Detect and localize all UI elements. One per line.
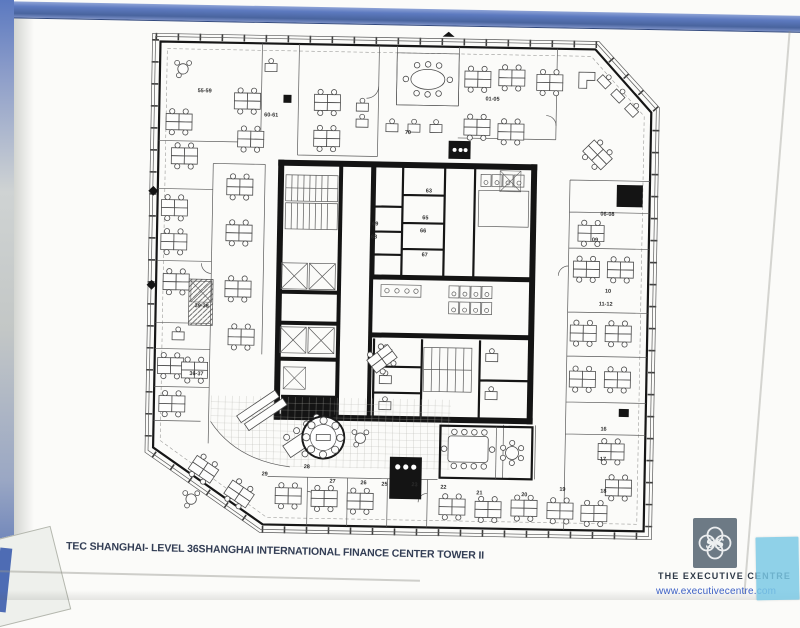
- core-stair-top: [285, 175, 338, 230]
- room-label: 16: [600, 427, 606, 433]
- room-label: 09: [592, 237, 598, 243]
- room-label: 26: [360, 480, 366, 486]
- room-label: 39-38: [195, 303, 209, 309]
- room-label: 20: [521, 492, 527, 498]
- room-label: 29: [262, 471, 268, 477]
- oval-meeting-room: [396, 53, 459, 106]
- room-label: 27: [329, 479, 335, 485]
- paper-crease-line: [743, 31, 790, 594]
- room-label: 28: [304, 464, 310, 470]
- room-label: 01-05: [485, 96, 499, 102]
- room-label: 10: [605, 289, 611, 295]
- conference-room: [440, 426, 533, 480]
- room-label: 25: [381, 482, 387, 488]
- logo-monogram: SS: [706, 537, 725, 552]
- room-label: 06-08: [600, 212, 614, 218]
- quatrefoil-knot-icon: SS: [697, 522, 733, 564]
- room-label: 63: [426, 188, 432, 194]
- room-label: 23: [411, 482, 417, 488]
- room-label: 21: [476, 490, 482, 496]
- room-label: 19: [559, 487, 565, 493]
- room-label: 68: [371, 234, 377, 240]
- core-stair-bottom: [423, 347, 472, 392]
- room-label: 36-37: [189, 371, 203, 377]
- room-label: 70: [405, 130, 411, 136]
- room-label: 55-59: [198, 88, 212, 94]
- room-label: 18: [600, 489, 606, 495]
- scanned-floorplan-photo: 55-5960-617001-0506-08091011-12161718192…: [0, 0, 800, 600]
- room-label: 17: [600, 457, 606, 463]
- room-label: 69: [372, 221, 378, 227]
- floor-plan: 55-5960-617001-0506-08091011-12161718192…: [138, 22, 673, 557]
- floor-plan-drawing: 55-5960-617001-0506-08091011-12161718192…: [138, 22, 673, 557]
- room-label: 66: [420, 228, 426, 234]
- room-label: 22: [440, 485, 446, 491]
- binder-left-edge: [0, 0, 14, 600]
- paper-left-shadow: [14, 12, 34, 600]
- room-label: 67: [422, 252, 428, 258]
- underlying-card-corner: [0, 526, 71, 628]
- room-label: 60-61: [264, 112, 278, 118]
- cyan-sticky-tab: [755, 537, 799, 601]
- room-label: 65: [422, 215, 428, 221]
- executive-centre-logo: SS: [693, 518, 737, 568]
- room-label: 11-12: [599, 302, 613, 308]
